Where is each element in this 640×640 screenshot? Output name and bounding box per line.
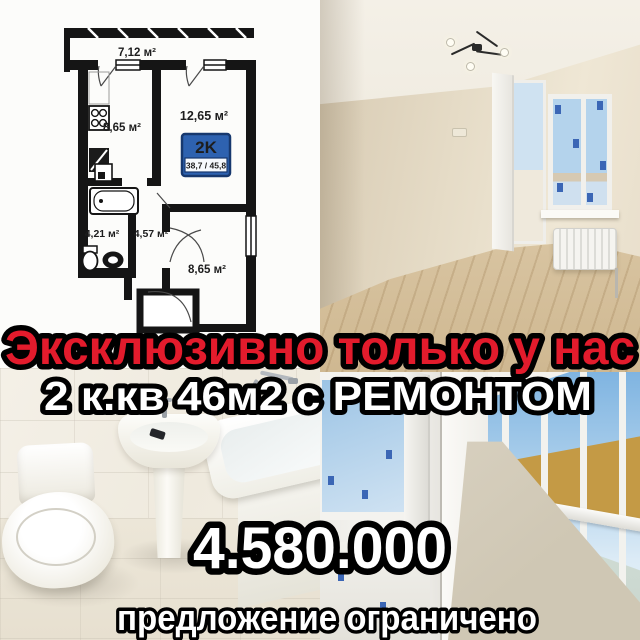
room-window — [548, 94, 612, 210]
floor-plan-panel: 7,12 м² 8,65 м² 12,65 м² 4,21 м² 4,57 м²… — [0, 0, 320, 368]
wall-socket — [452, 128, 467, 137]
protective-tape — [555, 105, 561, 114]
floor-plan-walls — [64, 28, 256, 332]
room-photo — [320, 0, 640, 372]
balcony-room-window — [320, 372, 412, 520]
room-label-balcony: 7,12 м² — [118, 47, 156, 59]
protective-tape — [328, 476, 334, 485]
floor-plan-drawing: 7,12 м² 8,65 м² 12,65 м² 4,21 м² 4,57 м²… — [0, 0, 320, 368]
balcony-door-leaf — [492, 73, 514, 252]
sink-faucet — [162, 400, 167, 418]
radiator — [553, 228, 617, 270]
balcony-door-opening — [510, 80, 546, 244]
room-label-hallway: 4,57 м² — [134, 228, 169, 240]
badge-type-label: 2K — [195, 138, 217, 157]
ceiling-light — [450, 30, 520, 80]
balcony-photo — [320, 372, 640, 640]
room-label-bathroom: 4,21 м² — [85, 228, 120, 240]
apartment-type-badge: 2K 38,7 / 45,8 — [182, 134, 230, 176]
room-label-living: 12,65 м² — [180, 109, 228, 123]
window-sill — [541, 210, 619, 218]
room-label-bedroom: 8,65 м² — [188, 264, 226, 276]
open-window-sash — [404, 372, 430, 535]
bathroom-photo — [0, 368, 320, 640]
real-estate-ad-collage: 7,12 м² 8,65 м² 12,65 м² 4,21 м² 4,57 м²… — [0, 0, 640, 640]
room-label-kitchen: 8,65 м² — [103, 122, 141, 134]
badge-areas-label: 38,7 / 45,8 — [186, 161, 226, 171]
